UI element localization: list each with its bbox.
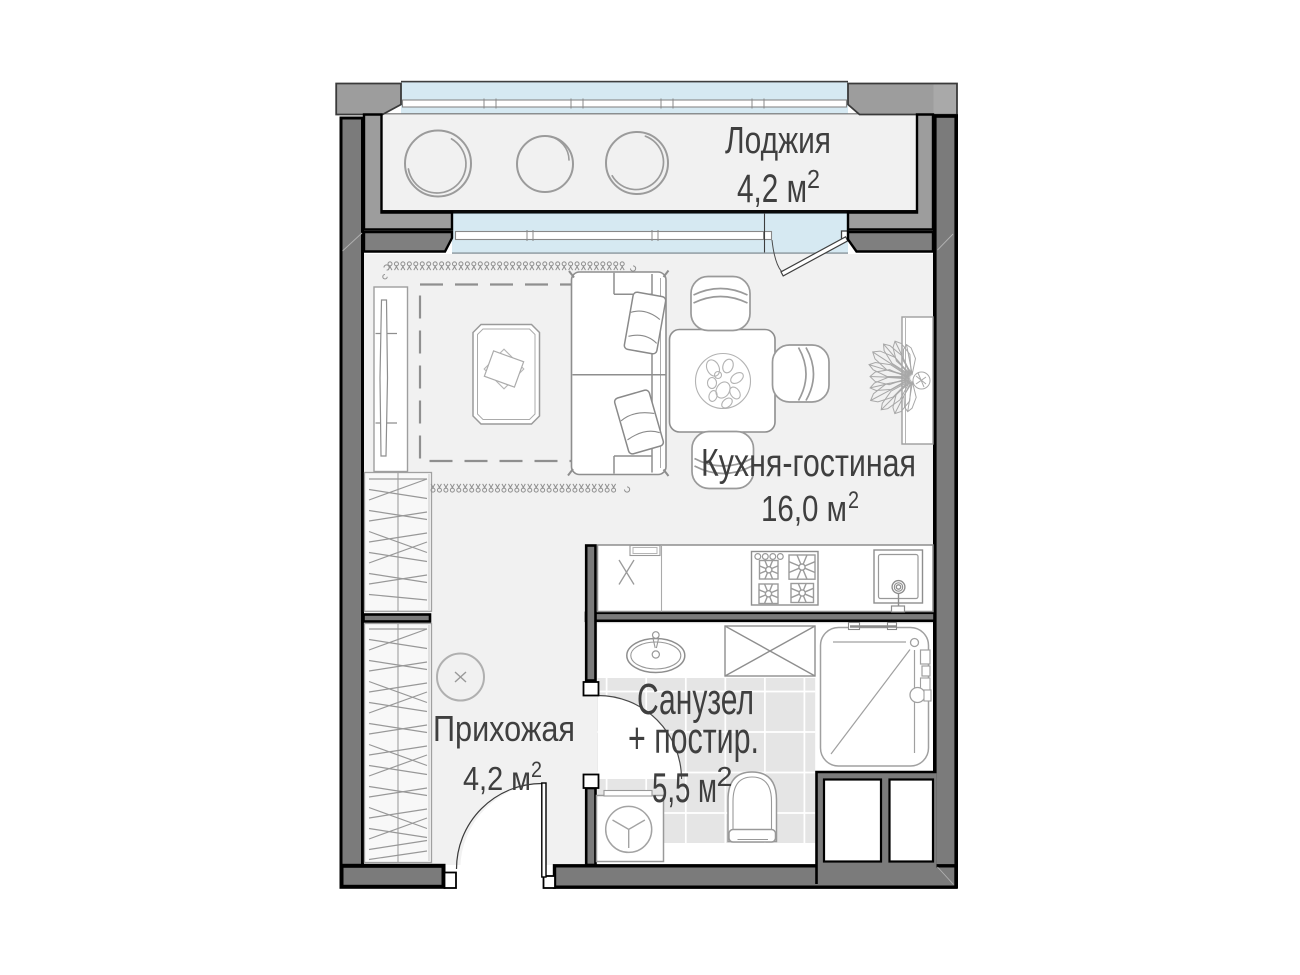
svg-text:2: 2 (807, 164, 820, 194)
svg-text:2: 2 (717, 761, 733, 792)
svg-text:+ постир.: + постир. (628, 714, 759, 763)
svg-text:2: 2 (848, 487, 859, 514)
svg-text:Лоджия: Лоджия (725, 120, 831, 162)
svg-text:Прихожая: Прихожая (433, 708, 575, 749)
svg-text:4,2 м: 4,2 м (737, 167, 807, 211)
svg-text:5,5 м: 5,5 м (652, 764, 717, 811)
svg-text:Кухня-гостиная: Кухня-гостиная (701, 442, 916, 485)
svg-text:16,0 м: 16,0 м (761, 488, 847, 529)
svg-text:4,2 м: 4,2 м (463, 760, 531, 797)
svg-text:2: 2 (531, 757, 542, 782)
